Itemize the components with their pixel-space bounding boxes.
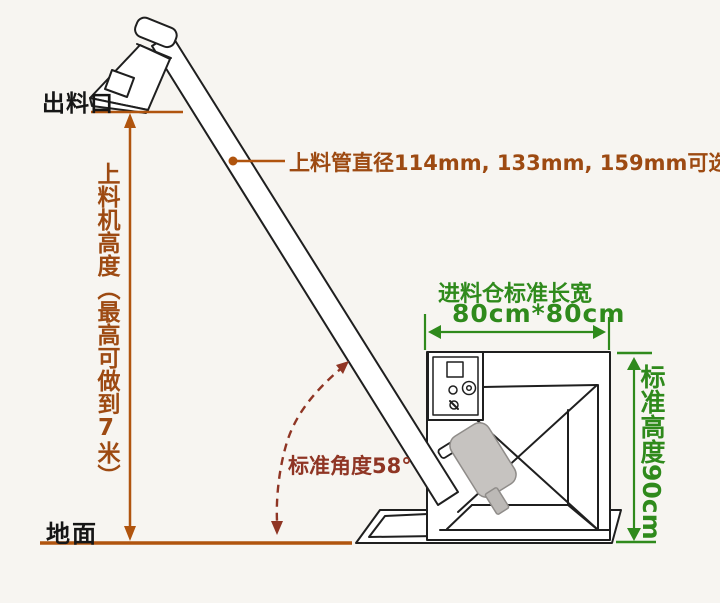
ground-label: 地面 <box>46 514 98 549</box>
control-panel <box>428 352 483 420</box>
angle-arc <box>271 361 349 535</box>
bin-size-value: 80cm*80cm <box>452 299 625 328</box>
feeder-height-text-1: 上料机高度（最高可做到 <box>93 162 119 415</box>
feeder-height-label: 上料机高度（最高可做到7米） <box>94 162 117 487</box>
standard-height-label: 标准高度90cm <box>638 364 664 540</box>
feeder-height-text-2: 米） <box>93 441 119 487</box>
arrow-left-icon <box>428 325 441 339</box>
feeder-height-digit: 7 <box>93 415 119 441</box>
standard-angle-label: 标准角度58° <box>288 450 412 480</box>
screw-conveyor-tube <box>152 34 458 505</box>
arc-arrow-upper-icon <box>336 361 349 374</box>
pipe-diameter-label: 上料管直径114mm, 133mm, 159mm可选 <box>289 147 720 177</box>
diagram-stage: 出料口 地面 上料机高度（最高可做到7米） 上料管直径114mm, 133mm,… <box>0 0 720 603</box>
arc-arrow-lower-icon <box>271 521 283 535</box>
leader-dot <box>229 157 238 166</box>
arrow-down-icon <box>124 526 136 541</box>
outlet-label: 出料口 <box>42 84 114 118</box>
arrow-up-icon <box>124 113 136 128</box>
